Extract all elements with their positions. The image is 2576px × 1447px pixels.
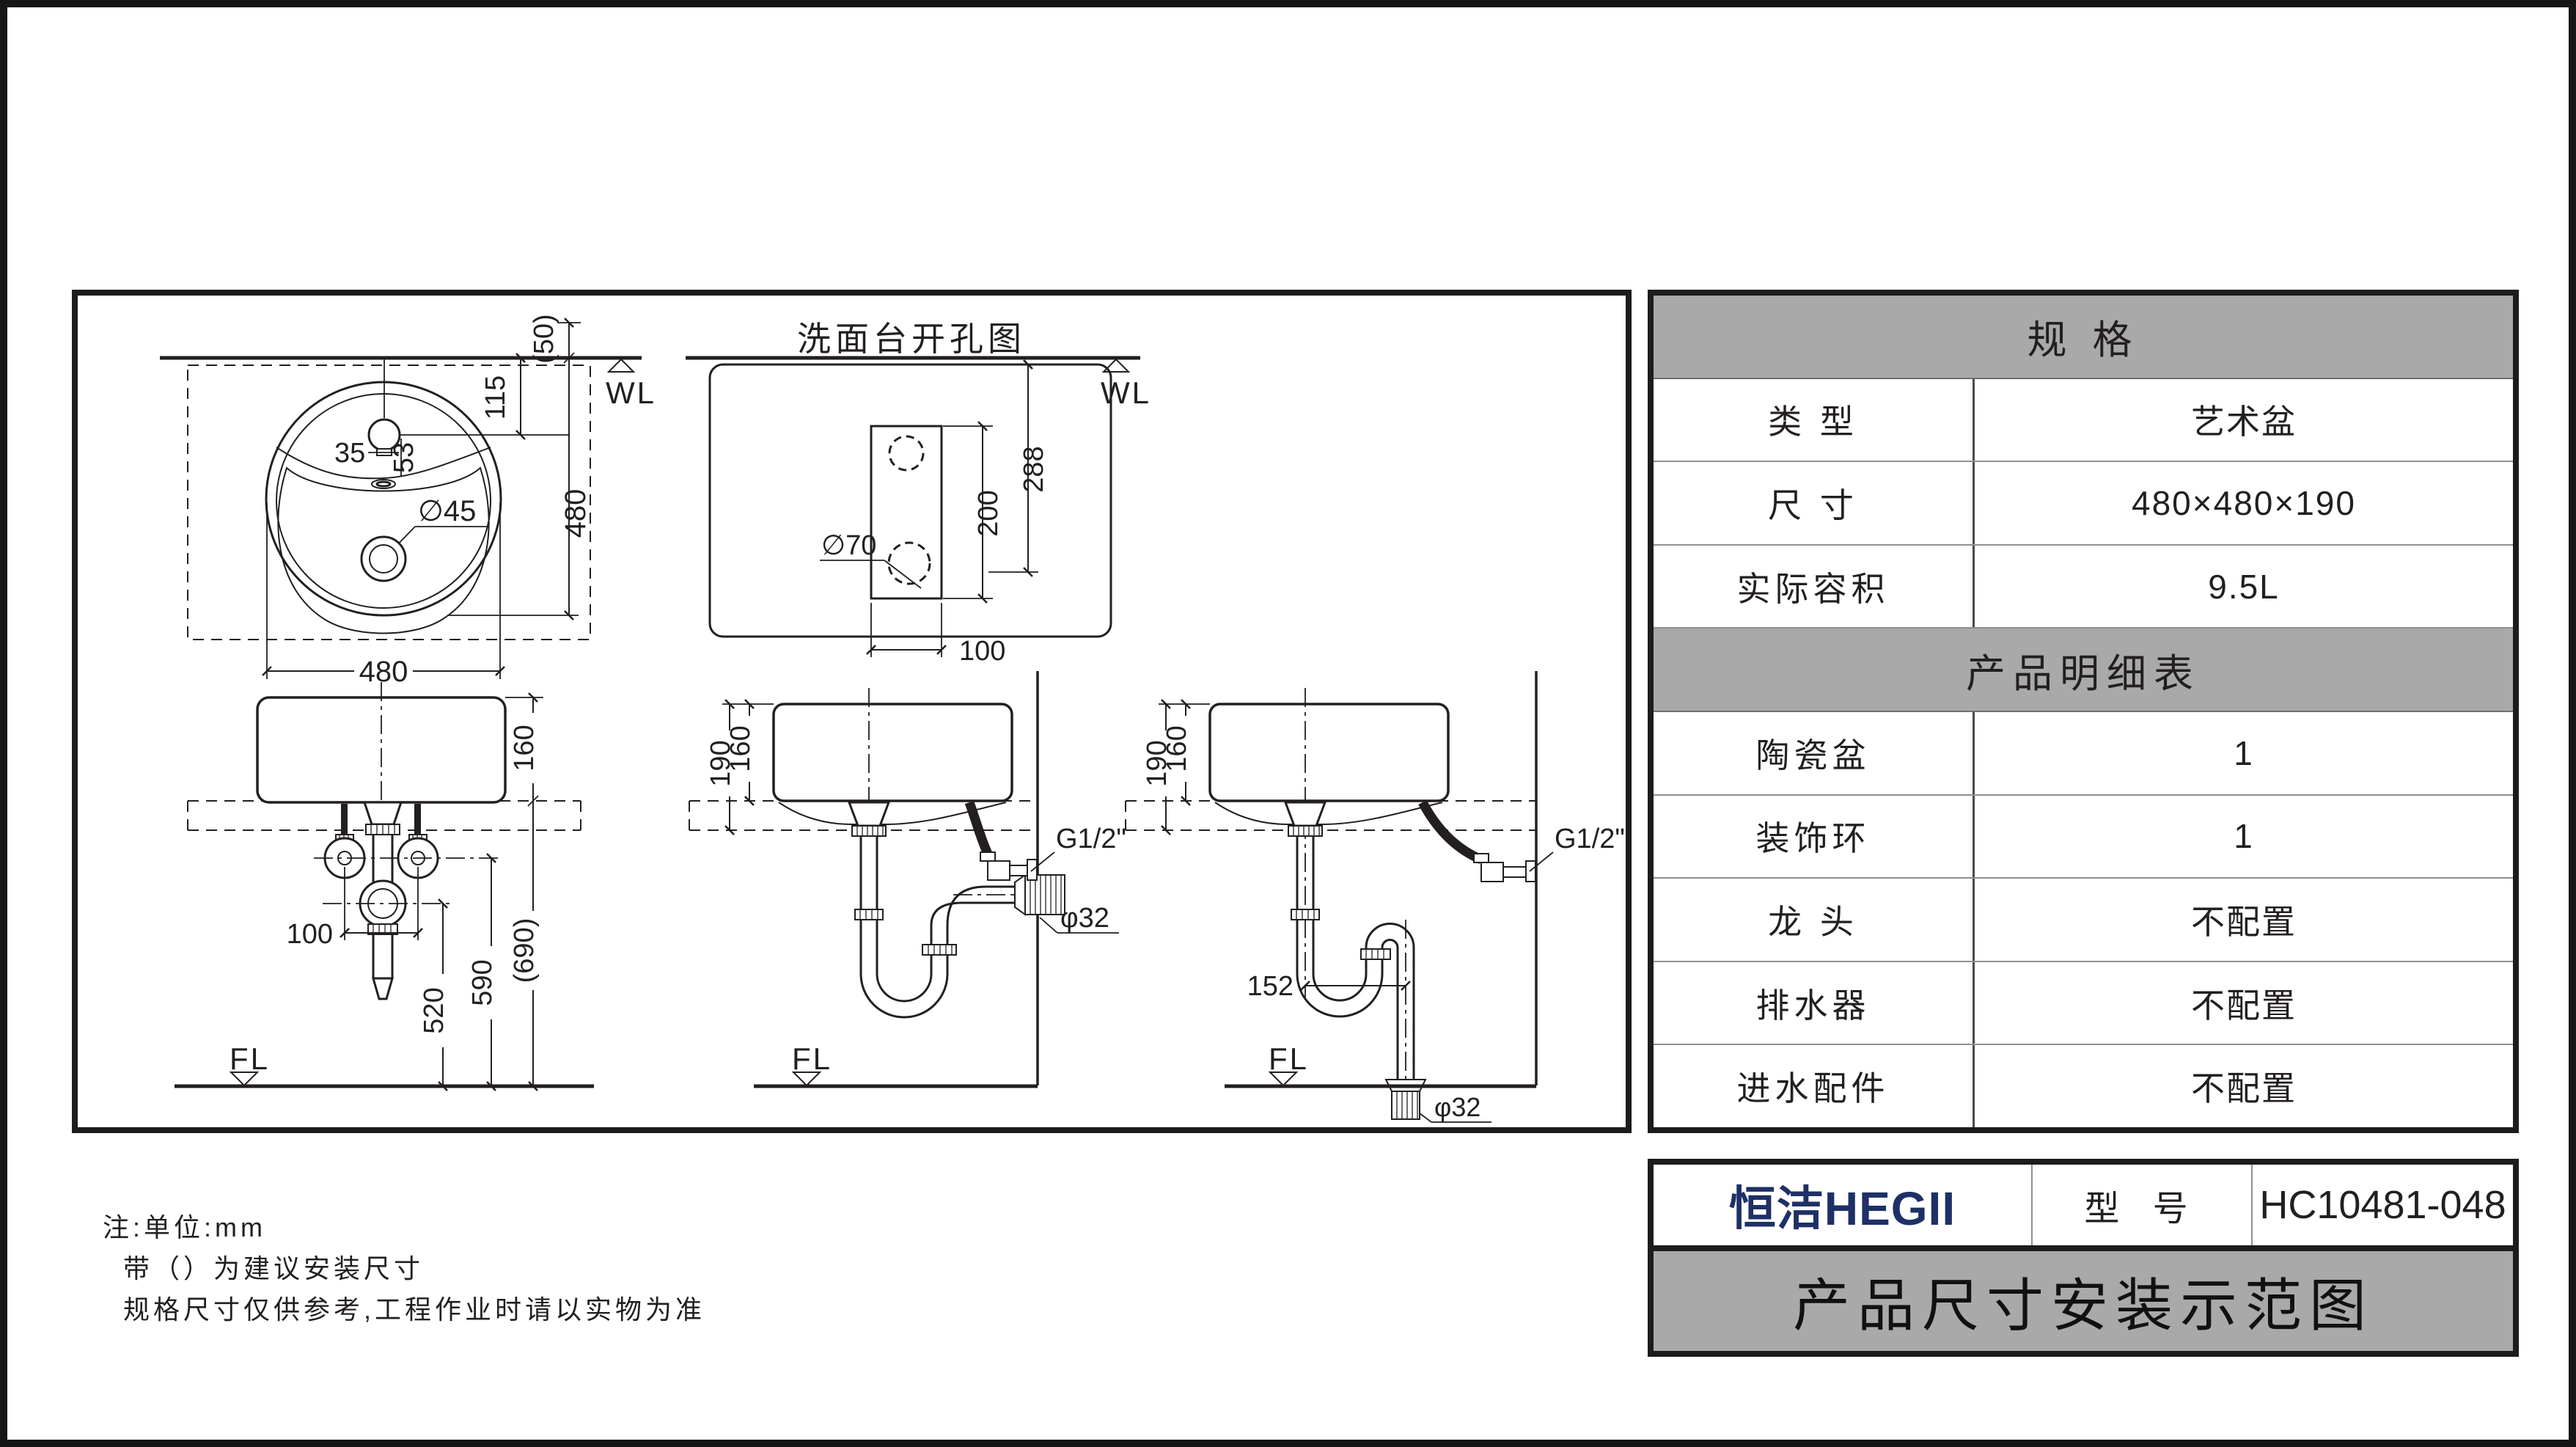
installation-diagram-sheet: WL 35 53 115 (50) 480	[0, 0, 2576, 1447]
drawing-panel-frame	[72, 290, 1632, 1133]
row-label: 装饰环	[1654, 796, 1973, 878]
row-label: 尺 寸	[1654, 462, 1973, 544]
model-label: 型 号	[2031, 1165, 2251, 1245]
row-value: 不配置	[1973, 1045, 2513, 1127]
row-label: 龙 头	[1654, 879, 1973, 961]
row-value: 9.5L	[1973, 546, 2513, 628]
title-block: 恒洁HEGII 型 号 HC10481-048 产品尺寸安装示范图	[1648, 1159, 2519, 1357]
table-row-inlet-fitting: 进水配件 不配置	[1654, 1045, 2513, 1127]
row-value: 480×480×190	[1973, 462, 2513, 544]
table-row-size: 尺 寸 480×480×190	[1654, 462, 2513, 546]
row-label: 类 型	[1654, 379, 1973, 461]
row-label: 实际容积	[1654, 546, 1973, 628]
row-value: 1	[1973, 796, 2513, 878]
table-row-ceramic-basin: 陶瓷盆 1	[1654, 712, 2513, 796]
table-row-type: 类 型 艺术盆	[1654, 379, 2513, 463]
row-label: 陶瓷盆	[1654, 712, 1973, 794]
spec-table: 规 格 类 型 艺术盆 尺 寸 480×480×190 实际容积 9.5L 产品…	[1648, 290, 2519, 1133]
row-label: 进水配件	[1654, 1045, 1973, 1127]
detail-header: 产品明细表	[1654, 629, 2513, 712]
spec-header: 规 格	[1654, 296, 2513, 379]
row-value: 不配置	[1973, 962, 2513, 1044]
model-number: HC10481-048	[2251, 1165, 2513, 1245]
note-line-3: 规格尺寸仅供参考,工程作业时请以实物为准	[123, 1289, 705, 1330]
notes: 注:单位:mm 带（）为建议安装尺寸 规格尺寸仅供参考,工程作业时请以实物为准	[103, 1207, 705, 1330]
row-value: 不配置	[1973, 879, 2513, 961]
row-label: 排水器	[1654, 962, 1973, 1044]
brand-logo: 恒洁HEGII	[1654, 1165, 2031, 1245]
table-row-drainer: 排水器 不配置	[1654, 962, 2513, 1046]
table-row-capacity: 实际容积 9.5L	[1654, 546, 2513, 629]
table-row-trim-ring: 装饰环 1	[1654, 796, 2513, 879]
note-line-2: 带（）为建议安装尺寸	[123, 1248, 705, 1289]
row-value: 艺术盆	[1973, 379, 2513, 461]
table-row-faucet: 龙 头 不配置	[1654, 879, 2513, 962]
sheet-title-banner: 产品尺寸安装示范图	[1654, 1245, 2513, 1351]
note-line-1: 注:单位:mm	[103, 1207, 705, 1248]
row-value: 1	[1973, 712, 2513, 794]
